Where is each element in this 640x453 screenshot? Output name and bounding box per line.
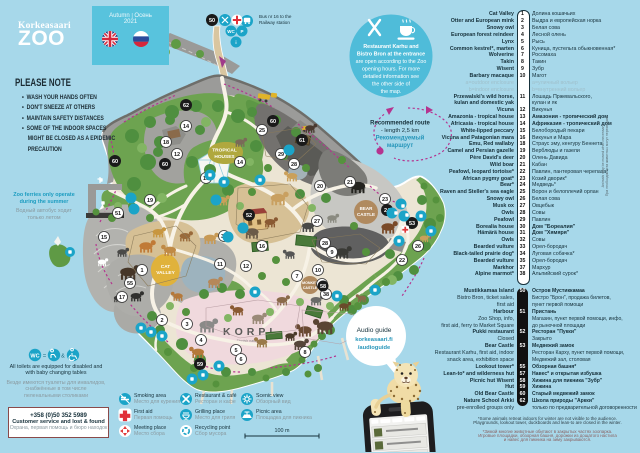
svg-text:6: 6 — [239, 357, 242, 363]
svg-text:51: 51 — [115, 211, 121, 217]
svg-text:MONKEY: MONKEY — [302, 281, 318, 285]
svg-text:19: 19 — [147, 198, 153, 204]
svg-text:P: P — [240, 29, 243, 34]
svg-text:10: 10 — [315, 268, 321, 274]
svg-text:60: 60 — [112, 159, 118, 165]
svg-text:16: 16 — [259, 244, 265, 250]
svg-text:29: 29 — [278, 152, 284, 158]
svg-text:21: 21 — [347, 180, 353, 186]
svg-text:11: 11 — [217, 262, 223, 268]
svg-text:WC: WC — [227, 29, 235, 34]
svg-text:12: 12 — [243, 264, 249, 270]
svg-text:TROPICAL: TROPICAL — [212, 148, 237, 154]
svg-text:HOUSES: HOUSES — [214, 154, 235, 160]
svg-text:25: 25 — [259, 128, 265, 134]
svg-text:58: 58 — [320, 284, 326, 290]
svg-text:28: 28 — [322, 241, 328, 247]
svg-text:100 m: 100 m — [275, 428, 290, 434]
svg-text:&: & — [61, 354, 65, 360]
svg-text:38: 38 — [323, 292, 329, 298]
svg-text:60: 60 — [162, 162, 168, 168]
svg-text:15: 15 — [101, 235, 107, 241]
svg-text:3: 3 — [185, 322, 188, 328]
svg-text:60: 60 — [270, 119, 276, 125]
svg-text:=: = — [43, 354, 47, 360]
svg-text:i: i — [235, 40, 236, 45]
svg-text:55: 55 — [127, 281, 133, 287]
svg-text:20: 20 — [317, 184, 323, 190]
svg-text:CAT: CAT — [161, 264, 171, 270]
svg-text:1: 1 — [140, 268, 143, 274]
svg-text:27: 27 — [314, 219, 320, 225]
svg-text:8: 8 — [303, 350, 306, 356]
svg-text:52: 52 — [246, 213, 252, 219]
svg-text:WC: WC — [30, 353, 39, 359]
svg-text:5: 5 — [234, 348, 237, 354]
svg-text:50: 50 — [209, 18, 215, 24]
svg-text:9: 9 — [330, 250, 333, 256]
svg-text:Bus nr 16 to the: Bus nr 16 to the — [259, 14, 292, 19]
svg-text:17: 17 — [119, 295, 125, 301]
svg-text:28: 28 — [291, 162, 297, 168]
svg-text:14: 14 — [237, 160, 244, 166]
svg-text:CASTLE: CASTLE — [303, 286, 318, 290]
svg-text:2: 2 — [160, 318, 163, 324]
svg-text:61: 61 — [299, 138, 305, 144]
svg-text:Railway station: Railway station — [259, 20, 290, 25]
svg-text:7: 7 — [295, 274, 298, 280]
svg-text:VALLEY: VALLEY — [156, 270, 175, 276]
svg-text:59: 59 — [197, 362, 203, 368]
